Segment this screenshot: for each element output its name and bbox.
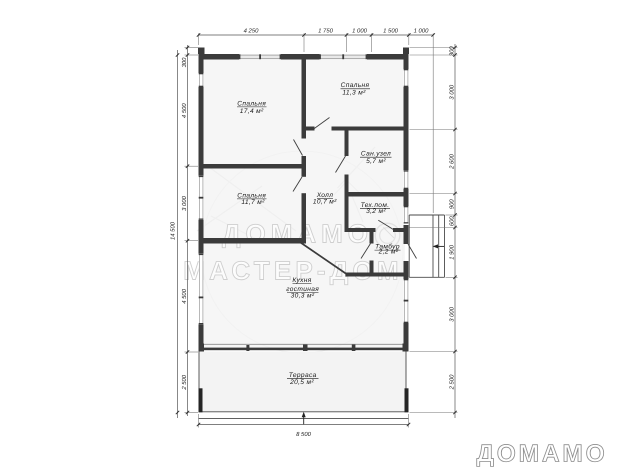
svg-text:1 750: 1 750 <box>318 28 333 35</box>
svg-text:Кухня: Кухня <box>292 277 311 284</box>
svg-text:300: 300 <box>449 46 456 57</box>
svg-text:ДОМАМО: ДОМАМО <box>222 219 373 249</box>
svg-text:4 500: 4 500 <box>181 288 188 303</box>
svg-text:2 500: 2 500 <box>181 374 188 390</box>
svg-text:3 000: 3 000 <box>449 306 456 321</box>
svg-text:10,7 м²: 10,7 м² <box>313 199 337 206</box>
svg-text:5,7 м²: 5,7 м² <box>366 158 386 165</box>
svg-text:300: 300 <box>181 57 188 68</box>
svg-text:11,7 м²: 11,7 м² <box>241 199 265 206</box>
svg-text:11,3 м²: 11,3 м² <box>342 90 366 97</box>
svg-text:Сан.узел: Сан.узел <box>361 151 391 158</box>
svg-text:3,2 м²: 3,2 м² <box>366 208 386 215</box>
svg-text:20,5 м²: 20,5 м² <box>289 379 314 386</box>
svg-text:3 000: 3 000 <box>449 84 456 99</box>
svg-text:ДОМАМО: ДОМАМО <box>477 441 608 468</box>
svg-text:600: 600 <box>449 216 456 227</box>
svg-text:2,2 м²: 2,2 м² <box>378 249 399 256</box>
svg-text:14 500: 14 500 <box>170 221 177 240</box>
svg-text:4 250: 4 250 <box>244 28 259 35</box>
svg-text:8 500: 8 500 <box>296 431 311 438</box>
svg-text:2 600: 2 600 <box>449 153 456 169</box>
svg-text:900: 900 <box>449 199 456 210</box>
svg-text:1 000: 1 000 <box>352 28 367 35</box>
svg-text:1 500: 1 500 <box>383 28 398 35</box>
svg-text:2 500: 2 500 <box>449 374 456 390</box>
svg-text:4 500: 4 500 <box>181 103 188 118</box>
svg-text:30,3 м²: 30,3 м² <box>291 292 315 299</box>
svg-text:1 000: 1 000 <box>414 28 429 35</box>
svg-text:Спальня: Спальня <box>237 100 266 107</box>
svg-text:3 000: 3 000 <box>181 195 188 210</box>
svg-text:Спальня: Спальня <box>341 82 370 89</box>
svg-text:17,4 м²: 17,4 м² <box>240 108 264 115</box>
svg-text:1 900: 1 900 <box>449 244 456 259</box>
